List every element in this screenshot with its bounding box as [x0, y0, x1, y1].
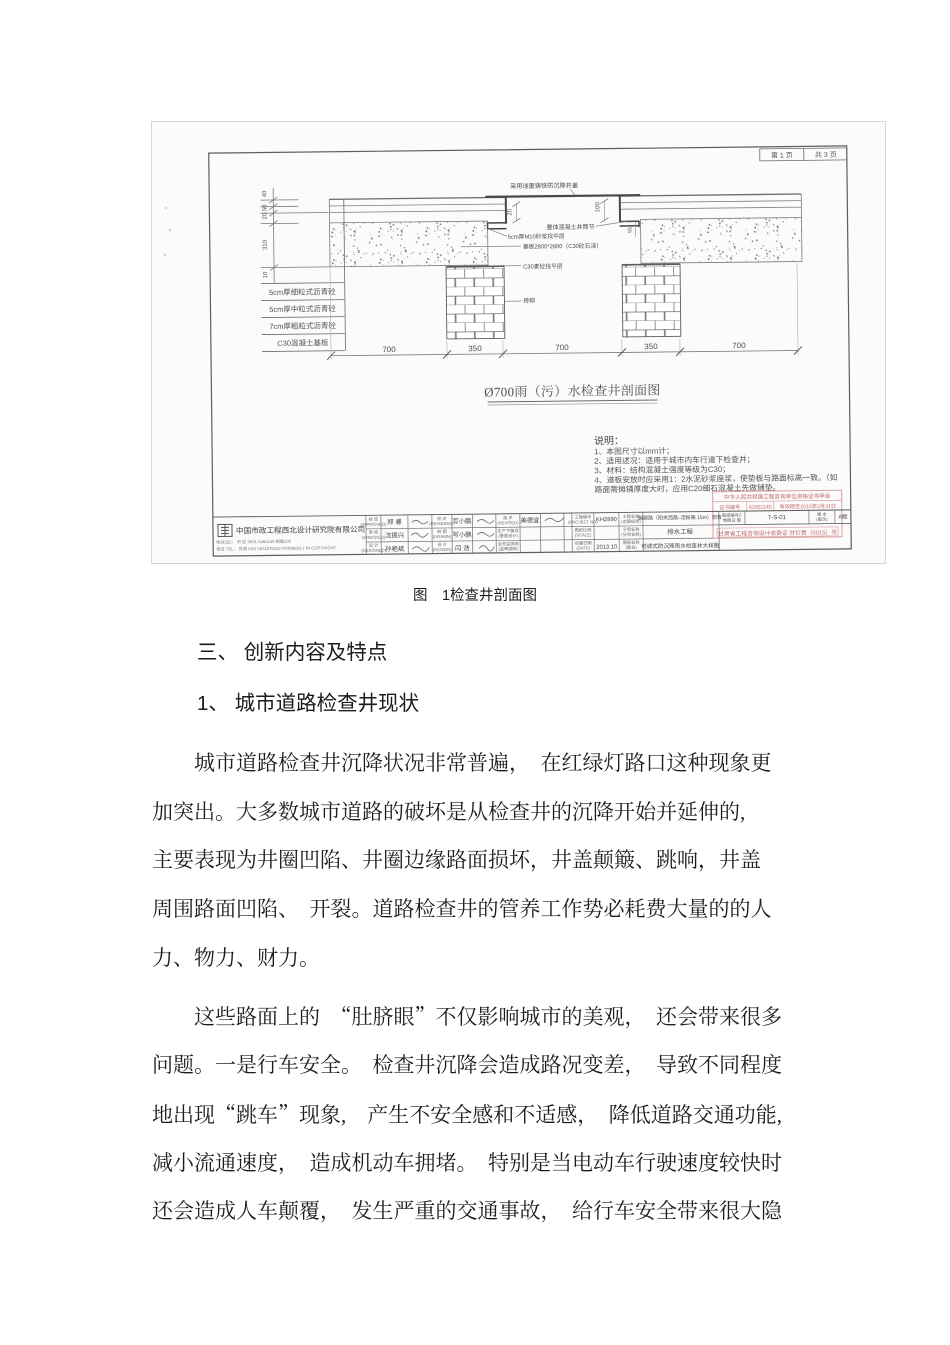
svg-text:说明：: 说明：: [594, 434, 624, 447]
svg-text:基板2800*2800（C30砼石浇）: 基板2800*2800（C30砼石浇）: [523, 242, 602, 251]
svg-text:证书编号: 证书编号: [719, 503, 740, 511]
svg-text:700: 700: [732, 341, 746, 350]
svg-text:350: 350: [644, 342, 658, 351]
svg-text:Ø700雨（污）水检查井剖面图: Ø700雨（污）水检查井剖面图: [484, 383, 661, 400]
svg-text:砖砌: 砖砌: [523, 296, 535, 304]
svg-text:20: 20: [507, 208, 513, 215]
svg-text:(垂直设计): (垂直设计): [498, 532, 518, 539]
svg-text:100: 100: [595, 202, 601, 213]
svg-text:制图证 图: 制图证 图: [723, 517, 741, 524]
svg-text:40: 40: [262, 190, 268, 197]
svg-text:孙艳斌: 孙艳斌: [385, 544, 405, 553]
svg-text:共 3 页: 共 3 页: [815, 150, 837, 159]
svg-text:350: 350: [468, 344, 482, 353]
svg-text:A版: A版: [838, 512, 848, 520]
svg-text:5cm厚中粒式沥青砼: 5cm厚中粒式沥青砼: [269, 303, 336, 314]
svg-text:沈振兴: 沈振兴: [385, 530, 405, 539]
svg-text:5cm厚M10砂浆找平层: 5cm厚M10砂浆找平层: [508, 232, 565, 241]
svg-text:C30混凝土基板: C30混凝土基板: [277, 337, 329, 348]
svg-text:7cm厚粗粒式沥青砼: 7cm厚粗粒式沥青砼: [269, 320, 336, 331]
svg-text:310: 310: [263, 239, 269, 250]
svg-text:(DATE): (DATE): [576, 545, 590, 550]
svg-text:(监审部网): (监审部网): [498, 545, 518, 552]
svg-text:(版次): (版次): [816, 516, 828, 523]
svg-text:美德宜: 美德宜: [520, 515, 540, 524]
svg-text:700: 700: [382, 345, 396, 354]
svg-text:KH2890: KH2890: [596, 517, 617, 523]
svg-text:7-S-01: 7-S-01: [768, 515, 787, 521]
svg-text:路面需摊铺厚度大时，应用C20细石混凝土先做铺垫。: 路面需摊铺厚度大时，应用C20细石混凝土先做铺垫。: [595, 482, 781, 494]
svg-text:闫 浩: 闫 浩: [455, 543, 470, 552]
svg-text:郑 睿: 郑 睿: [387, 517, 402, 526]
svg-text:(DESIGNED): (DESIGNED): [361, 548, 386, 553]
svg-text:(分项名称): (分项名称): [621, 531, 641, 538]
svg-text:62001145: 62001145: [749, 505, 772, 511]
svg-text:5cm厚细粒式沥青砼: 5cm厚细粒式沥青砼: [269, 286, 336, 297]
svg-text:2、适用述况：适用于城市内车行道下检查井；: 2、适用述况：适用于城市内车行道下检查井；: [594, 454, 754, 466]
svg-text:整体混凝土井筒节: 整体混凝土井筒节: [547, 223, 595, 232]
svg-text:(APPROVED): (APPROVED): [360, 522, 387, 527]
svg-text:(图名): (图名): [626, 544, 638, 551]
svg-text:第 1 页: 第 1 页: [771, 151, 793, 160]
svg-text:C30素砼找平层: C30素砼找平层: [523, 262, 563, 270]
svg-text:1、本图尺寸以mm计；: 1、本图尺寸以mm计；: [594, 445, 674, 456]
svg-text:电话 TEL： 传真 FAX 0931876532 FORM: 电话 TEL： 传真 FAX 0931876532 FORMERLY IN CO…: [216, 544, 336, 552]
svg-text:可调式防沉降雨水检查井大样图: 可调式防沉降雨水检查井大样图: [641, 541, 720, 550]
svg-text:10: 10: [263, 271, 269, 278]
svg-text:有效期至2010年2月31日: 有效期至2010年2月31日: [779, 502, 836, 511]
svg-text:20.50: 20.50: [262, 204, 268, 220]
svg-text:(PROJECT NO): (PROJECT NO): [568, 519, 598, 524]
svg-text:(DRAWN): (DRAWN): [433, 534, 452, 539]
svg-text:(REVISED): (REVISED): [497, 520, 519, 525]
svg-text:700: 700: [555, 343, 569, 352]
svg-text:(CHECKED): (CHECKED): [362, 535, 386, 540]
svg-text:(SCALE): (SCALE): [575, 532, 592, 537]
svg-text:朝那路（阳关西路–淀粉路 15m）沥青: 朝那路（阳关西路–淀粉路 15m）沥青: [638, 514, 722, 522]
svg-text:地址(兰)： 市 区 0931-8465148 邮编100: 地址(兰)： 市 区 0931-8465148 邮编100: [216, 538, 292, 546]
svg-text:写小鹏: 写小鹏: [452, 530, 471, 539]
svg-text:中国市政工程西北设计研究院有限公司: 中国市政工程西北设计研究院有限公司: [236, 524, 365, 535]
svg-text:中华人民共和国工程咨询单位资格证书甲级: 中华人民共和国工程咨询单位资格证书甲级: [724, 492, 831, 501]
svg-text:(REVIEWED): (REVIEWED): [429, 521, 455, 526]
svg-text:排水工程: 排水工程: [667, 527, 693, 536]
svg-text:写小鹏: 写小鹏: [452, 516, 471, 525]
svg-text:2013.10: 2013.10: [596, 545, 617, 551]
svg-text:采用球墨铸铁防沉降井盖: 采用球墨铸铁防沉降井盖: [510, 181, 578, 190]
svg-text:(DESIGN): (DESIGN): [433, 547, 453, 552]
svg-text:55: 55: [628, 227, 634, 233]
